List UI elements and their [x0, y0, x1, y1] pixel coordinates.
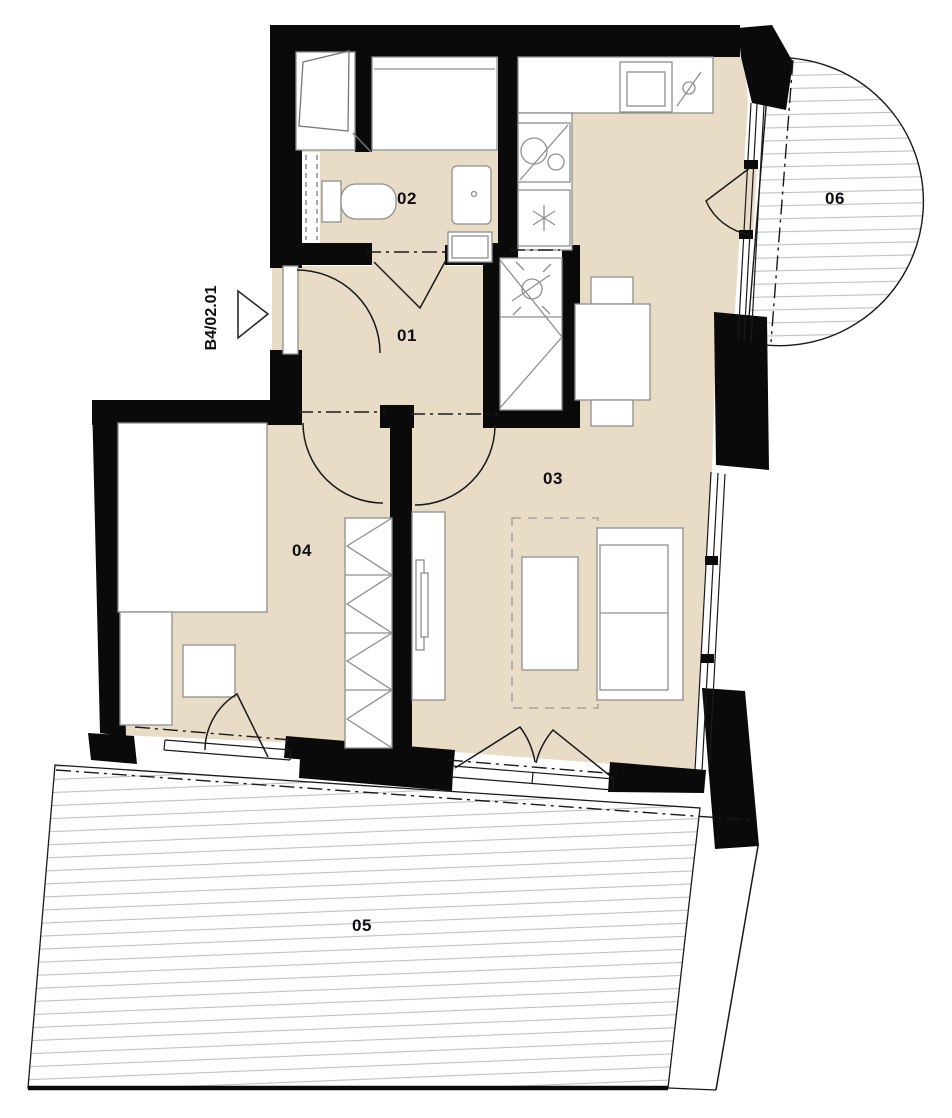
floor-plan: 01 02 03 04 05 06 B4/02.01	[0, 0, 952, 1118]
entrance-door-leaf	[283, 266, 298, 354]
bed-icon	[118, 423, 267, 612]
tv-cabinet-icon	[412, 512, 445, 700]
room-label-04: 04	[292, 541, 312, 561]
shower-icon	[500, 258, 562, 410]
terrace-05-area	[28, 765, 758, 1090]
cooktop-icon	[518, 123, 570, 182]
washing-machine-icon	[448, 232, 492, 262]
unit-label: B4/02.01	[203, 286, 221, 351]
sofa-icon	[597, 528, 683, 700]
room-label-06: 06	[825, 189, 845, 209]
dresser-icon	[120, 612, 172, 725]
floor-plan-drawing	[0, 0, 952, 1118]
room-label-01: 01	[397, 326, 417, 346]
wardrobe-icon	[345, 518, 392, 748]
bathroom-sink-icon	[452, 166, 491, 224]
fridge-icon	[518, 190, 570, 246]
bathtub-icon	[372, 57, 497, 150]
coffee-table-icon	[522, 557, 578, 670]
bedside-table-icon	[183, 645, 235, 697]
room-label-02: 02	[397, 189, 417, 209]
entrance-arrow-icon	[238, 291, 268, 338]
room-label-05: 05	[352, 916, 372, 936]
room-label-03: 03	[543, 469, 563, 489]
